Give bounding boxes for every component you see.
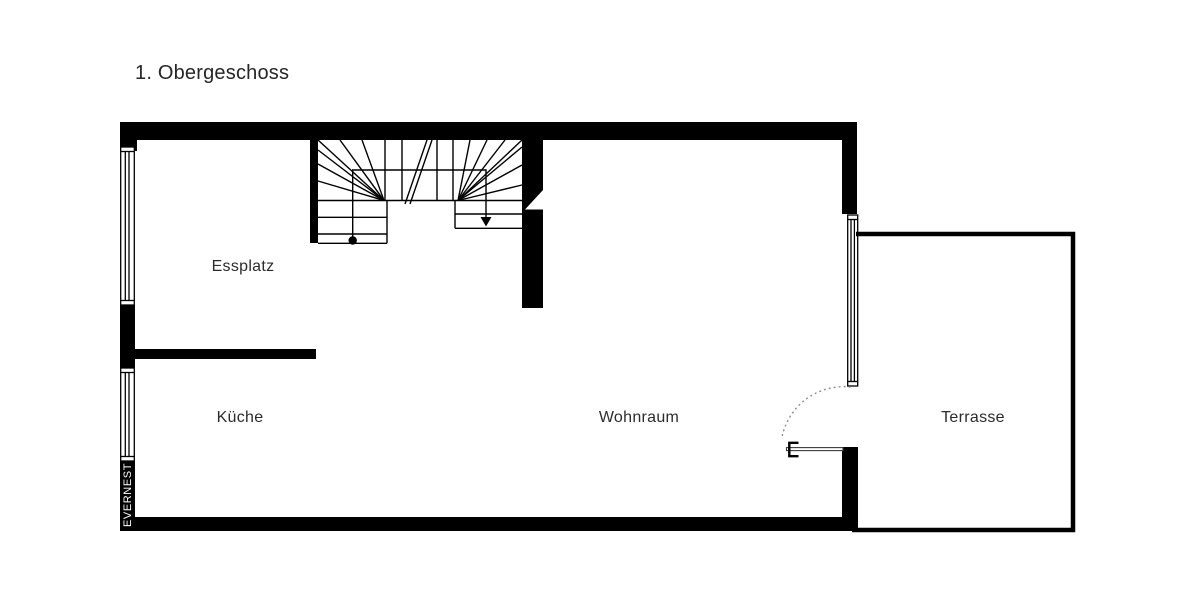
staircase [318, 140, 522, 245]
room-label-terrasse: Terrasse [941, 409, 1005, 426]
window-left-upper-icon [121, 147, 135, 305]
stair-start-dot-icon [349, 236, 357, 244]
wall-right-upper [842, 140, 857, 214]
wall-stair-right [522, 140, 543, 308]
stair-break-line [405, 140, 432, 204]
watermark-evernest: EVERNEST [122, 463, 134, 527]
terrace-door [782, 387, 850, 457]
room-label-essplatz: Essplatz [212, 258, 275, 275]
room-label-kueche: Küche [217, 409, 264, 426]
door-leaf [787, 448, 844, 451]
wall-top [120, 122, 857, 140]
floorplan-canvas: 1. Obergeschoss Essplatz Küche Wohnraum … [0, 0, 1200, 600]
door-swing-arc [782, 387, 850, 437]
wall-bottom [120, 517, 852, 531]
wall-left-mid [120, 305, 135, 368]
floorplan-drawing [0, 0, 1200, 600]
floor-title: 1. Obergeschoss [135, 62, 289, 85]
window-left-lower-icon [121, 368, 135, 461]
wall-right-lower [842, 447, 858, 531]
wall-stair-left [310, 140, 318, 243]
room-label-wohnraum: Wohnraum [599, 409, 679, 426]
stair-down-arrow-icon [481, 217, 492, 227]
terrace-outline [852, 234, 1073, 530]
stair-flight-right [455, 201, 522, 229]
window-right-icon [848, 215, 858, 386]
wall-interior-kueche [133, 349, 316, 359]
